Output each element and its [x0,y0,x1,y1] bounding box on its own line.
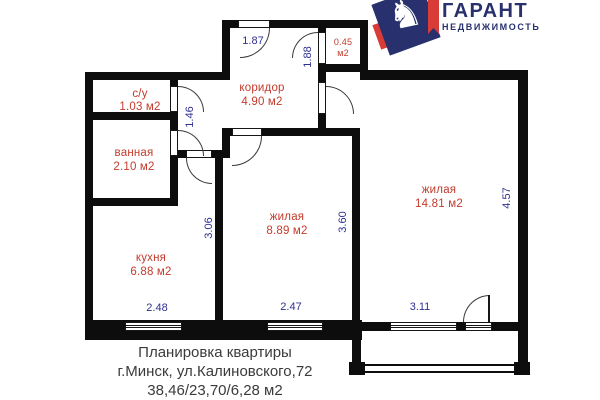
entrance-door-leaf [238,20,270,28]
wall [518,70,528,331]
wall [170,112,178,130]
mid-room-door-leaf [232,128,262,136]
balcony-railing [361,364,518,373]
wall [85,72,230,80]
wall [212,150,223,158]
room-label-bath-name: ванная [115,147,154,159]
chess-knight-icon: ♞ [384,0,425,37]
wall [360,70,528,80]
caption-address: г.Минск, ул.Калиновского,72 [50,362,380,381]
wall [93,198,178,206]
wall [318,64,368,72]
balcony-door-arc [463,295,490,322]
balcony-door-sill [465,322,492,331]
logo-title: ГАРАНТ [442,0,528,23]
room-label-su-area: 1.03 м2 [119,101,160,113]
dimension-entrance: 1.87 [242,35,263,47]
wall [270,20,368,28]
room-label-big-area: 14.81 м2 [415,198,463,210]
mid-room-door-arc [232,136,262,166]
balcony-wall-foot [514,362,530,375]
agency-logo: ♞ ГАРАНТ НЕДВИЖИМОСТЬ [375,0,545,60]
dimension-kitchen-width: 2.48 [146,302,167,314]
dimension-big-depth: 4.57 [501,187,513,208]
room-label-mid-area: 8.89 м2 [266,225,307,237]
room-label-su-name: с/у [132,88,147,100]
room-label-corridor-name: коридор [239,82,284,94]
wall [93,112,170,120]
room-label-closet-area2: м2 [337,48,349,58]
caption-areas: 38,46/23,70/6,28 м2 [50,381,380,400]
room-label-kitchen-name: кухня [136,252,166,264]
wall [170,72,178,86]
logo-subtitle: НЕДВИЖИМОСТЬ [442,22,540,32]
su-door-leaf [170,86,178,112]
caption-title: Планировка квартиры [50,343,380,362]
dimension-closet: 1.88 [302,46,314,67]
wall [352,136,360,331]
balcony-door-leaf [488,295,490,322]
dimension-mid-width: 2.47 [280,301,301,313]
wall [318,72,326,82]
kitchen-door-arc [186,158,212,184]
room-label-mid-name: жилая [270,211,304,223]
floor-plan-image: с/у 1.03 м2 ванная 2.10 м2 кухня 6.88 м2… [0,0,600,400]
wall [222,128,230,158]
closet-door-leaf [318,32,326,64]
wall [222,20,230,80]
room-label-kitchen-area: 6.88 м2 [130,266,171,278]
dimension-kitchen-depth: 3.06 [203,217,215,238]
mid-room-window [267,322,323,331]
dimension-vestibule: 1.46 [184,106,196,127]
big-room-door-arc [326,86,354,114]
caption: Планировка квартиры г.Минск, ул.Калиновс… [50,343,380,400]
big-room-window [390,322,457,331]
big-room-door-leaf [318,82,326,114]
room-label-bath-area: 2.10 м2 [113,161,154,173]
bath-door-leaf [170,130,178,156]
kitchen-window [125,322,182,331]
room-label-big-name: жилая [422,184,456,196]
dimension-mid-depth: 3.60 [337,211,349,232]
room-label-corridor-area: 4.90 м2 [241,96,282,108]
dimension-big-width: 3.11 [410,301,431,313]
wall [262,128,360,136]
bath-door-arc [178,130,204,156]
wall [85,72,93,340]
room-label-closet-area1: 0.45 [334,37,352,47]
balcony-wall [518,331,528,364]
wall [215,150,223,320]
